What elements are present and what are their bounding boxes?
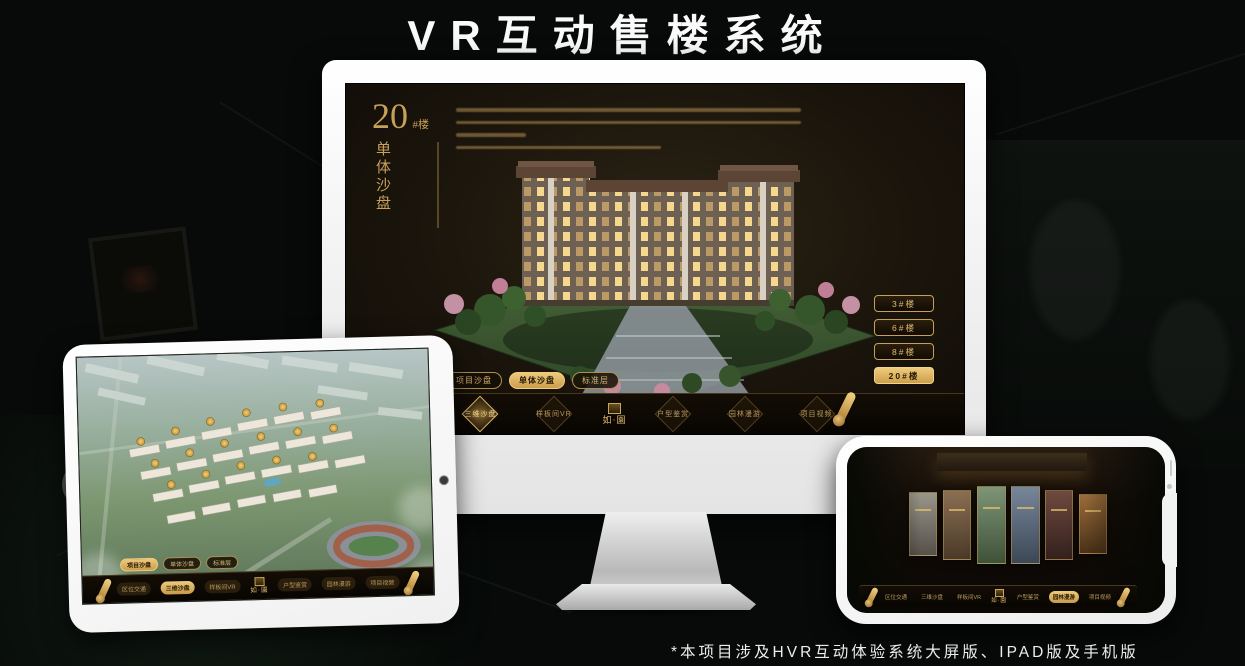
tab-project-sandbox[interactable]: 项目沙盘 [446, 372, 502, 389]
background-building-blob [1030, 200, 1120, 340]
promo-canvas: VR互动售楼系统 20 #楼 单体沙盘 [0, 0, 1245, 666]
tablet-tab-standard-floor[interactable]: 标准层 [206, 556, 238, 570]
tablet-screen: 项目沙盘 单体沙盘 标准层 区位交通 三维沙盘 样板间VR 如·園 户型鉴赏 园… [76, 348, 435, 605]
nav-item-3d-sandbox[interactable]: 三维沙盘 [455, 404, 505, 424]
background-building-blob [1150, 300, 1230, 420]
nav-item-3d-sandbox[interactable]: 三维沙盘 [160, 581, 194, 595]
scene-panel-building[interactable] [1011, 486, 1040, 564]
phone-screen: 区位交通 三维沙盘 样板间VR 如·園 户型鉴赏 园林漫游 项目视频 [847, 447, 1165, 613]
building-3d-render[interactable] [430, 140, 880, 408]
background-framed-sign [88, 226, 198, 341]
building-title-block: 20 #楼 单体沙盘 [372, 98, 439, 228]
phone-camera-icon [1167, 484, 1172, 489]
tablet-device: 项目沙盘 单体沙盘 标准层 区位交通 三维沙盘 样板间VR 如·園 户型鉴赏 园… [62, 335, 459, 633]
scene-panel-gallery[interactable] [1045, 490, 1073, 560]
scene-panel-interior[interactable] [943, 490, 971, 560]
footnote-caption: *本项目涉及HVR互动体验系统大屏版、IPAD版及手机版 [671, 640, 1139, 662]
nav-item-showroom-vr[interactable]: 样板间VR [527, 404, 581, 424]
nav-item-floorplans[interactable]: 户型鉴赏 [278, 578, 312, 592]
brand-logo: 如·園 [250, 577, 269, 595]
tablet-tab-project-sandbox[interactable]: 项目沙盘 [120, 558, 158, 572]
nav-item-garden-roam[interactable]: 园林漫游 [1049, 591, 1079, 603]
tablet-home-button[interactable] [439, 475, 449, 485]
scroll-ornament-icon[interactable] [96, 577, 112, 602]
scroll-ornament-icon[interactable] [404, 569, 420, 594]
nav-item-location[interactable]: 区位交通 [117, 582, 151, 596]
seal-icon [608, 403, 621, 414]
phone-device: 区位交通 三维沙盘 样板间VR 如·園 户型鉴赏 园林漫游 项目视频 [836, 436, 1176, 624]
floor-button-3[interactable]: 3#楼 [874, 295, 934, 312]
nav-item-project-video[interactable]: 项目视频 [365, 575, 399, 589]
nav-item-showroom-vr[interactable]: 样板间VR [953, 591, 985, 603]
seal-icon [254, 577, 264, 586]
monitor-stand [590, 512, 722, 586]
nav-item-location[interactable]: 区位交通 [881, 591, 911, 603]
nav-item-3d-sandbox[interactable]: 三维沙盘 [917, 591, 947, 603]
floor-button-8[interactable]: 8#楼 [874, 343, 934, 360]
mode-tab-row: 项目沙盘 单体沙盘 标准层 [446, 372, 626, 389]
brand-logo: 如·園 [991, 589, 1007, 605]
page-title: VR互动售楼系统 [0, 2, 1245, 63]
nav-item-floorplans[interactable]: 户型鉴赏 [648, 404, 698, 424]
phone-notch [1162, 493, 1177, 567]
monitor-stand-base [556, 584, 756, 610]
scene-panel-garden[interactable] [977, 486, 1006, 564]
nav-item-floorplans[interactable]: 户型鉴赏 [1013, 591, 1043, 603]
floor-button-6[interactable]: 6#楼 [874, 319, 934, 336]
tablet-tab-single-sandbox[interactable]: 单体沙盘 [163, 557, 201, 571]
brand-logo: 如·園 [602, 403, 626, 425]
tab-single-sandbox[interactable]: 单体沙盘 [509, 372, 565, 389]
phone-nav-bar: 区位交通 三维沙盘 样板间VR 如·園 户型鉴赏 园林漫游 项目视频 [859, 585, 1137, 607]
nav-item-garden-roam[interactable]: 园林漫游 [322, 577, 356, 591]
tab-standard-floor[interactable]: 标准层 [572, 372, 619, 389]
floor-button-group: 3#楼 6#楼 8#楼 20#楼 [874, 295, 934, 391]
nav-item-garden-roam[interactable]: 园林漫游 [720, 404, 770, 424]
building-number: 20 [372, 96, 408, 136]
interior-ceiling-light [937, 453, 1087, 471]
seal-icon [995, 589, 1004, 597]
floor-button-20[interactable]: 20#楼 [874, 367, 934, 384]
scroll-ornament-icon[interactable] [865, 587, 879, 607]
nav-item-project-video[interactable]: 项目视频 [1085, 591, 1115, 603]
building-subtitle: 单体沙盘 [372, 141, 393, 213]
scroll-ornament-icon[interactable] [1117, 587, 1131, 607]
nav-item-showroom-vr[interactable]: 样板间VR [204, 580, 241, 594]
building-number-suffix: #楼 [412, 119, 429, 131]
phone-earpiece [1170, 460, 1173, 476]
